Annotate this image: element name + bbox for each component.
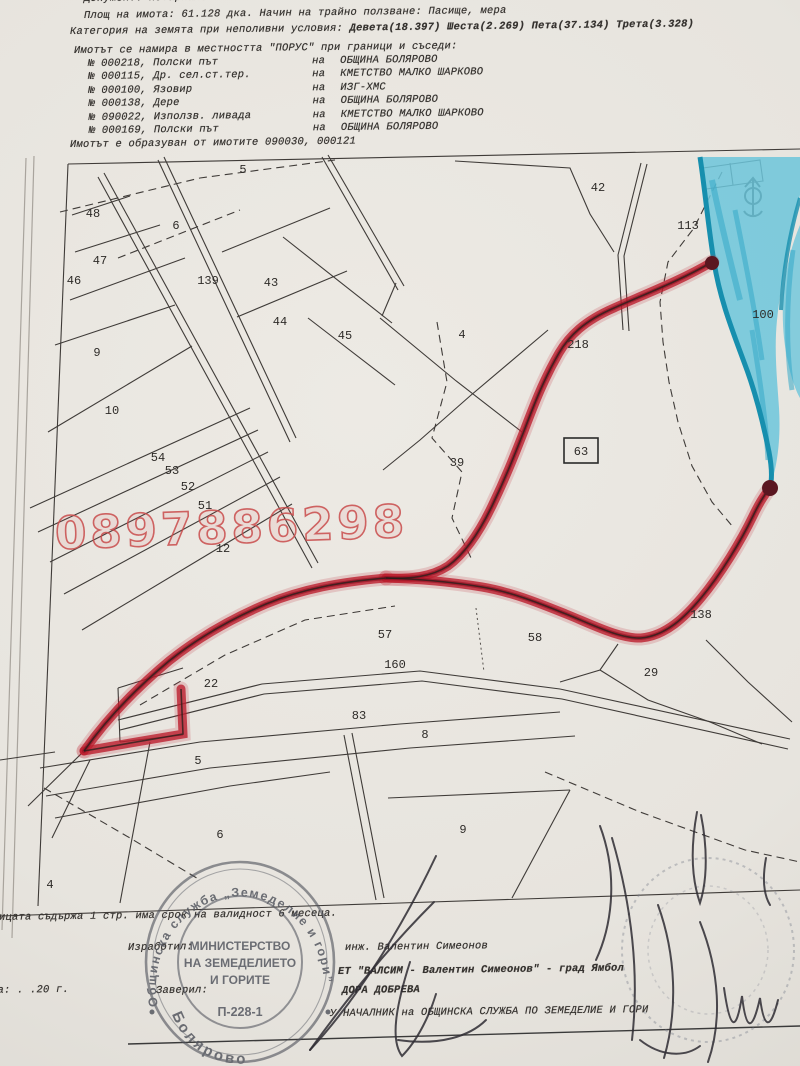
municipal-round-stamp: Общинска служба „Земеделие и гори” Боляр… [145,862,335,1066]
stamps-and-signatures: Общинска служба „Земеделие и гори” Боляр… [0,0,800,1066]
scanned-cadastral-sketch: 4847469106513943444542113100218439125453… [0,0,800,1066]
stamp-code: П-228-1 [217,1005,262,1019]
pen-signatures [310,812,778,1062]
stamp-inner-line1: МИНИСТЕРСТВО [190,939,291,953]
stamp-inner-line3: И ГОРИТЕ [210,973,270,987]
stamp-inner-line2: НА ЗЕМЕДЕЛИЕТО [184,956,296,970]
faint-round-stamp [622,858,794,1042]
